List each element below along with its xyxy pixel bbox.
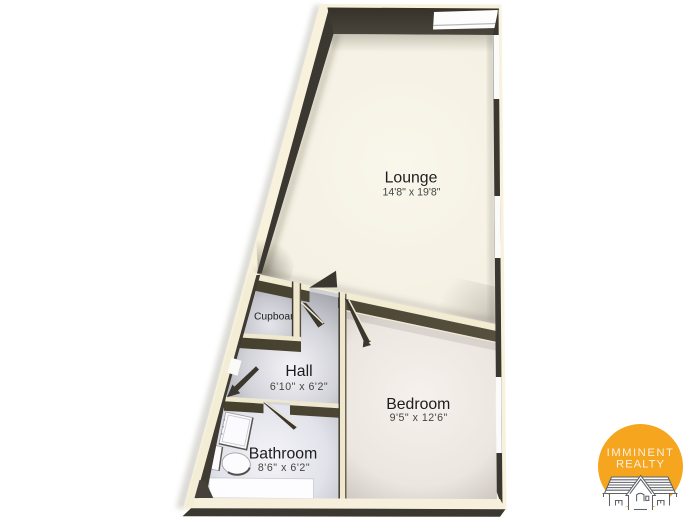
svg-text:Hall: Hall xyxy=(285,363,312,380)
svg-text:Bathroom: Bathroom xyxy=(249,446,318,463)
svg-text:6'10" x 6'2": 6'10" x 6'2" xyxy=(270,381,328,393)
svg-text:REALTY: REALTY xyxy=(616,459,665,471)
svg-text:14'8" x 19'8": 14'8" x 19'8" xyxy=(382,187,440,199)
svg-text:IMMINENT: IMMINENT xyxy=(607,447,675,459)
svg-text:9'5" x 12'6": 9'5" x 12'6" xyxy=(390,412,448,424)
svg-text:Lounge: Lounge xyxy=(385,170,438,187)
svg-text:Bedroom: Bedroom xyxy=(386,396,450,413)
svg-text:8'6" x 6'2": 8'6" x 6'2" xyxy=(258,462,310,474)
